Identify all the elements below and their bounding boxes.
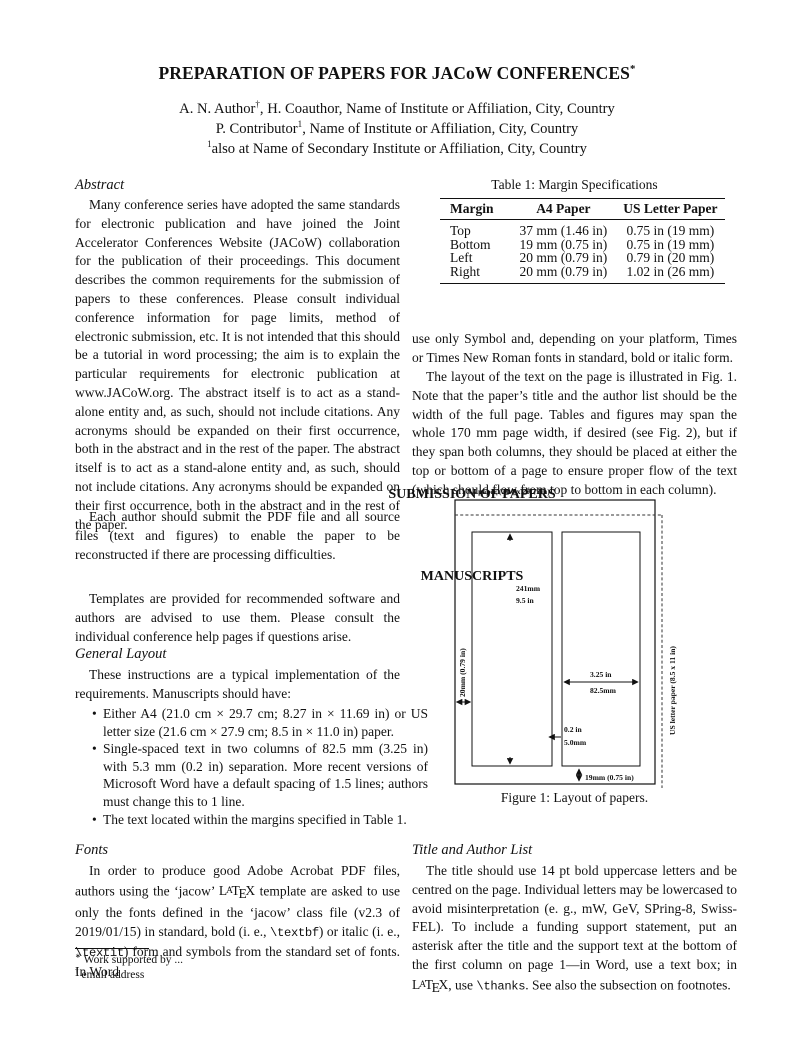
list-item: Single-spaced text in two columns of 82.… (103, 740, 428, 810)
column-header: A4 Paper (512, 199, 616, 220)
table-cell: 0.75 in (19 mm) (615, 238, 725, 252)
title-author-list-heading: Title and Author List (412, 842, 737, 859)
figure-gap-in-label: 0.2 in (564, 725, 583, 734)
a4-paper-outline (455, 500, 655, 784)
table-row: Left 20 mm (0.79 in) 0.79 in (20 mm) (440, 251, 725, 265)
table-cell: 37 mm (1.46 in) (512, 220, 616, 238)
title-author-list-text: The title should use 14 pt bold uppercas… (412, 862, 737, 998)
figure-column-height-mm-label: 241mm (516, 584, 541, 593)
submission-text: Each author should submit the PDF file a… (75, 508, 400, 564)
figure-bottom-margin-label: 19mm (0.75 in) (585, 773, 634, 782)
table-cell: 20 mm (0.79 in) (512, 265, 616, 283)
table-caption: Table 1: Margin Specifications (412, 177, 737, 193)
figure-us-letter-label: US letter paper (8.5 x 11 in) (668, 646, 677, 735)
table-cell: 1.02 in (26 mm) (615, 265, 725, 283)
table-row: Top 37 mm (1.46 in) 0.75 in (19 mm) (440, 220, 725, 238)
body-paragraph: The layout of the text on the page is il… (412, 368, 737, 500)
column-header: US Letter Paper (615, 199, 725, 220)
left-text-column-box (472, 532, 552, 766)
table-cell: Top (440, 220, 512, 238)
table-cell: 0.79 in (20 mm) (615, 251, 725, 265)
table-row: Bottom 19 mm (0.75 in) 0.75 in (19 mm) (440, 238, 725, 252)
margin-spec-table: Margin A4 Paper US Letter Paper Top 37 m… (440, 198, 725, 284)
fonts-heading: Fonts (75, 842, 400, 859)
body-paragraph: use only Symbol and, depending on your p… (412, 330, 737, 368)
table-cell: Bottom (440, 238, 512, 252)
paper-title: PREPARATION OF PAPERS FOR JACoW CONFEREN… (0, 63, 794, 84)
list-item: Either A4 (21.0 cm × 29.7 cm; 8.27 in × … (103, 705, 428, 740)
figure-gap-mm-label: 5.0mm (564, 738, 587, 747)
footnote-rule (75, 948, 149, 949)
figure-column-height-in-label: 9.5 in (516, 596, 535, 605)
author-line: 1also at Name of Secondary Institute or … (0, 139, 794, 159)
footnote-funding: ∗ Work supported by ... (75, 953, 400, 968)
paper-page: { "header": { "title": "PREPARATION OF P… (0, 0, 794, 1057)
table-header-row: Margin A4 Paper US Letter Paper (440, 199, 725, 220)
table-cell: 19 mm (0.75 in) (512, 238, 616, 252)
manuscripts-text: Templates are provided for recommended s… (75, 590, 400, 646)
general-layout-heading: General Layout (75, 646, 400, 663)
table-cell: Left (440, 251, 512, 265)
figure-caption: Figure 1: Layout of papers. (412, 790, 737, 806)
abstract-heading: Abstract (75, 177, 400, 194)
author-line: A. N. Author†, H. Coauthor, Name of Inst… (0, 99, 794, 119)
footnote-email: † email address (75, 968, 400, 983)
column-header: Margin (440, 199, 512, 220)
table-row: Right 20 mm (0.79 in) 1.02 in (26 mm) (440, 265, 725, 283)
table-cell: 0.75 in (19 mm) (615, 220, 725, 238)
table-cell: 20 mm (0.79 in) (512, 251, 616, 265)
general-layout-intro: These instructions are a typical impleme… (75, 666, 400, 704)
author-line: P. Contributor1, Name of Institute or Af… (0, 119, 794, 139)
table-cell: Right (440, 265, 512, 283)
author-block: A. N. Author†, H. Coauthor, Name of Inst… (0, 99, 794, 159)
list-item: The text located within the margins spec… (103, 811, 428, 829)
figure-left-margin-label: 20mm (0.79 in) (458, 648, 467, 697)
figure-column-width-in-label: 3.25 in (590, 670, 612, 679)
abstract-text: Many conference series have adopted the … (75, 196, 400, 534)
figure-layout-diagram: A4 paper (21.0 x 29.7 cm) 241mm 9.5 in 2… (450, 485, 690, 790)
figure-a4-label: A4 paper (21.0 x 29.7 cm) (467, 487, 550, 496)
figure-column-width-mm-label: 82.5mm (590, 686, 617, 695)
layout-diagram-svg: A4 paper (21.0 x 29.7 cm) 241mm 9.5 in 2… (450, 485, 690, 790)
general-layout-bullets: Either A4 (21.0 cm × 29.7 cm; 8.27 in × … (75, 705, 428, 828)
